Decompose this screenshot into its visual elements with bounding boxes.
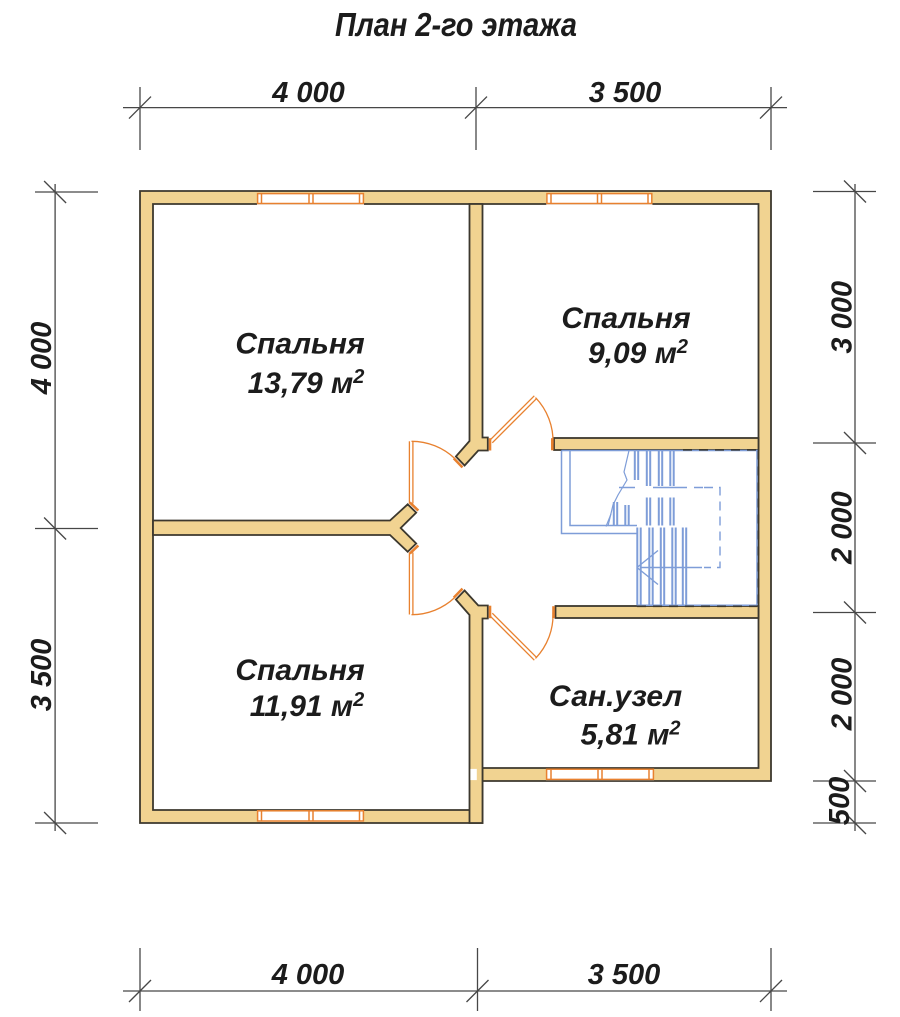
svg-text:5,81 м2: 5,81 м2 <box>580 718 680 752</box>
svg-text:Спальня: Спальня <box>235 328 365 361</box>
svg-text:4 000: 4 000 <box>26 322 58 396</box>
svg-text:4 000: 4 000 <box>271 959 345 991</box>
svg-text:2 000: 2 000 <box>827 491 859 565</box>
svg-text:2 000: 2 000 <box>827 658 859 732</box>
svg-text:3 500: 3 500 <box>589 77 662 109</box>
svg-text:Спальня: Спальня <box>561 302 691 335</box>
svg-text:11,91 м2: 11,91 м2 <box>250 689 365 723</box>
svg-text:3 500: 3 500 <box>588 959 661 991</box>
svg-text:Сан.узел: Сан.узел <box>549 680 683 713</box>
svg-text:План 2-го этажа: План 2-го этажа <box>335 6 577 43</box>
svg-text:3 500: 3 500 <box>26 639 58 712</box>
svg-text:3 000: 3 000 <box>827 281 859 354</box>
svg-text:Спальня: Спальня <box>235 654 365 687</box>
svg-text:9,09 м2: 9,09 м2 <box>588 336 688 370</box>
svg-text:4 000: 4 000 <box>271 77 345 109</box>
svg-text:13,79 м2: 13,79 м2 <box>248 366 365 400</box>
svg-text:500: 500 <box>824 777 856 825</box>
